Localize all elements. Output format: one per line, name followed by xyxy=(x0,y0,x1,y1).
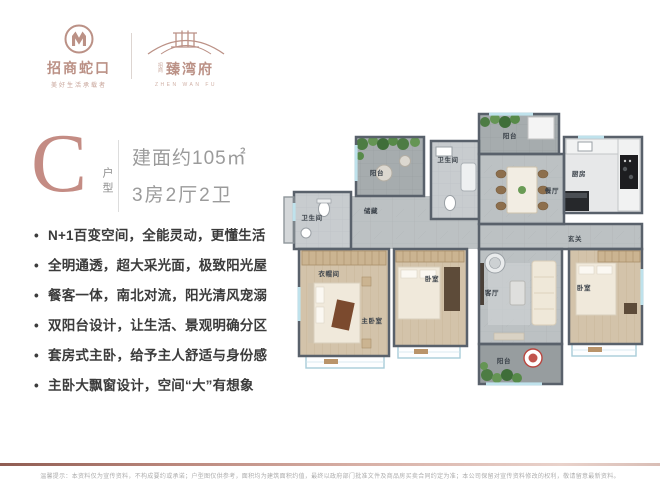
brand2-prefix: 招 商 xyxy=(158,64,163,75)
brand2-subtext: ZHEN WAN FU xyxy=(140,82,232,88)
room-label-foyer: 玄关 xyxy=(568,234,582,243)
floorplan: 阳台 卫生间 储藏 卫生间 阳台 厨房 餐厅 玄关 衣帽间 主卧室 卧室 客厅 … xyxy=(282,111,648,396)
room-label-balcony-tr: 阳台 xyxy=(503,131,517,140)
cmsk-logo: 招商蛇口 美好生活承载者 xyxy=(34,22,124,89)
feature-item: 全明通透，超大采光面，极致阳光屋 xyxy=(34,259,279,273)
feature-list: N+1百变空间，全能灵动，更懂生活 全明通透，超大采光面，极致阳光屋 餐客一体，… xyxy=(34,229,279,409)
room-label-storage: 储藏 xyxy=(363,206,378,215)
bay-bench xyxy=(324,359,338,364)
washbasin-icon xyxy=(301,228,311,238)
shower-icon xyxy=(461,163,476,191)
feature-item: 双阳台设计，让生活、景观明确分区 xyxy=(34,319,279,333)
bay-bench xyxy=(588,347,602,352)
equipment-box-icon xyxy=(528,117,554,139)
room-label-bedroom-rt: 卧室 xyxy=(577,283,591,292)
bridge-icon xyxy=(146,24,226,58)
centerpiece-icon xyxy=(518,186,526,194)
unit-area: 建面约105㎡ xyxy=(132,143,247,170)
brand2-prefix-bottom: 商 xyxy=(158,69,163,75)
unit-letter: C xyxy=(31,122,87,206)
unit-letter-suffix: 户型 xyxy=(99,167,115,197)
unit-divider xyxy=(118,140,119,212)
nightstand-icon xyxy=(362,277,371,286)
feature-item: 套房式主卧，给予主人舒适与身份感 xyxy=(34,349,279,363)
brand1-tagline: 美好生活承载者 xyxy=(34,80,124,89)
brand2-name: 臻湾府 xyxy=(166,59,214,79)
bay-bench xyxy=(414,349,428,354)
unit-specs: 建面约105㎡ 3房2厅2卫 xyxy=(132,143,247,207)
floorplan-svg: 阳台 卫生间 储藏 卫生间 阳台 厨房 餐厅 玄关 衣帽间 主卧室 卧室 客厅 … xyxy=(282,111,648,396)
room-label-balcony-b: 阳台 xyxy=(497,356,511,365)
cabinet xyxy=(494,333,524,340)
headboard xyxy=(308,283,314,343)
room-label-closet: 衣帽间 xyxy=(318,269,339,278)
unit-layout: 3房2厅2卫 xyxy=(132,180,247,207)
room-label-bath-mid: 卫生间 xyxy=(437,155,458,164)
closet-shelving xyxy=(302,251,386,265)
bookshelf xyxy=(396,251,464,262)
toilet-icon xyxy=(445,196,456,211)
room-label-kitchen: 厨房 xyxy=(572,169,586,178)
wardrobe-icon xyxy=(444,267,460,311)
room-label-dining: 餐厅 xyxy=(544,186,559,195)
coffee-table-icon xyxy=(510,281,525,305)
footer-gradient-rule xyxy=(0,463,660,466)
feature-item: 餐客一体，南北对流，阳光清风宠溺 xyxy=(34,289,279,303)
nightstand-icon xyxy=(362,339,371,348)
disclaimer-text: 温馨提示：本资料仅为宣传资料，不构成要约或承诺；户型图仅供参考，面积均为建筑面积… xyxy=(0,471,660,480)
room-label-balcony-tl: 阳台 xyxy=(370,168,384,177)
brand1-name: 招商蛇口 xyxy=(34,58,124,78)
feature-item: N+1百变空间，全能灵动，更懂生活 xyxy=(34,229,279,243)
room-label-bath-left: 卫生间 xyxy=(301,213,322,222)
feature-item: 主卧大飘窗设计，空间“大”有想象 xyxy=(34,379,279,393)
round-table-icon xyxy=(400,156,411,167)
brand-divider xyxy=(131,33,132,79)
room-label-living: 客厅 xyxy=(484,288,499,297)
room-label-master: 主卧室 xyxy=(361,316,382,325)
oven-icon xyxy=(620,155,638,189)
page: 招商蛇口 美好生活承载者 招 商 臻湾府 ZHEN WAN FU C 户型 建面… xyxy=(0,0,660,496)
washbasin-icon xyxy=(436,147,452,156)
zhenwanfu-logo: 招 商 臻湾府 ZHEN WAN FU xyxy=(140,24,232,88)
nightstand-icon xyxy=(624,303,637,314)
cmsk-monogram-icon xyxy=(62,22,96,56)
tv-icon xyxy=(480,263,484,305)
bookshelf xyxy=(598,251,640,262)
sink-icon xyxy=(578,142,592,151)
room-label-bedroom-mid: 卧室 xyxy=(425,274,439,283)
